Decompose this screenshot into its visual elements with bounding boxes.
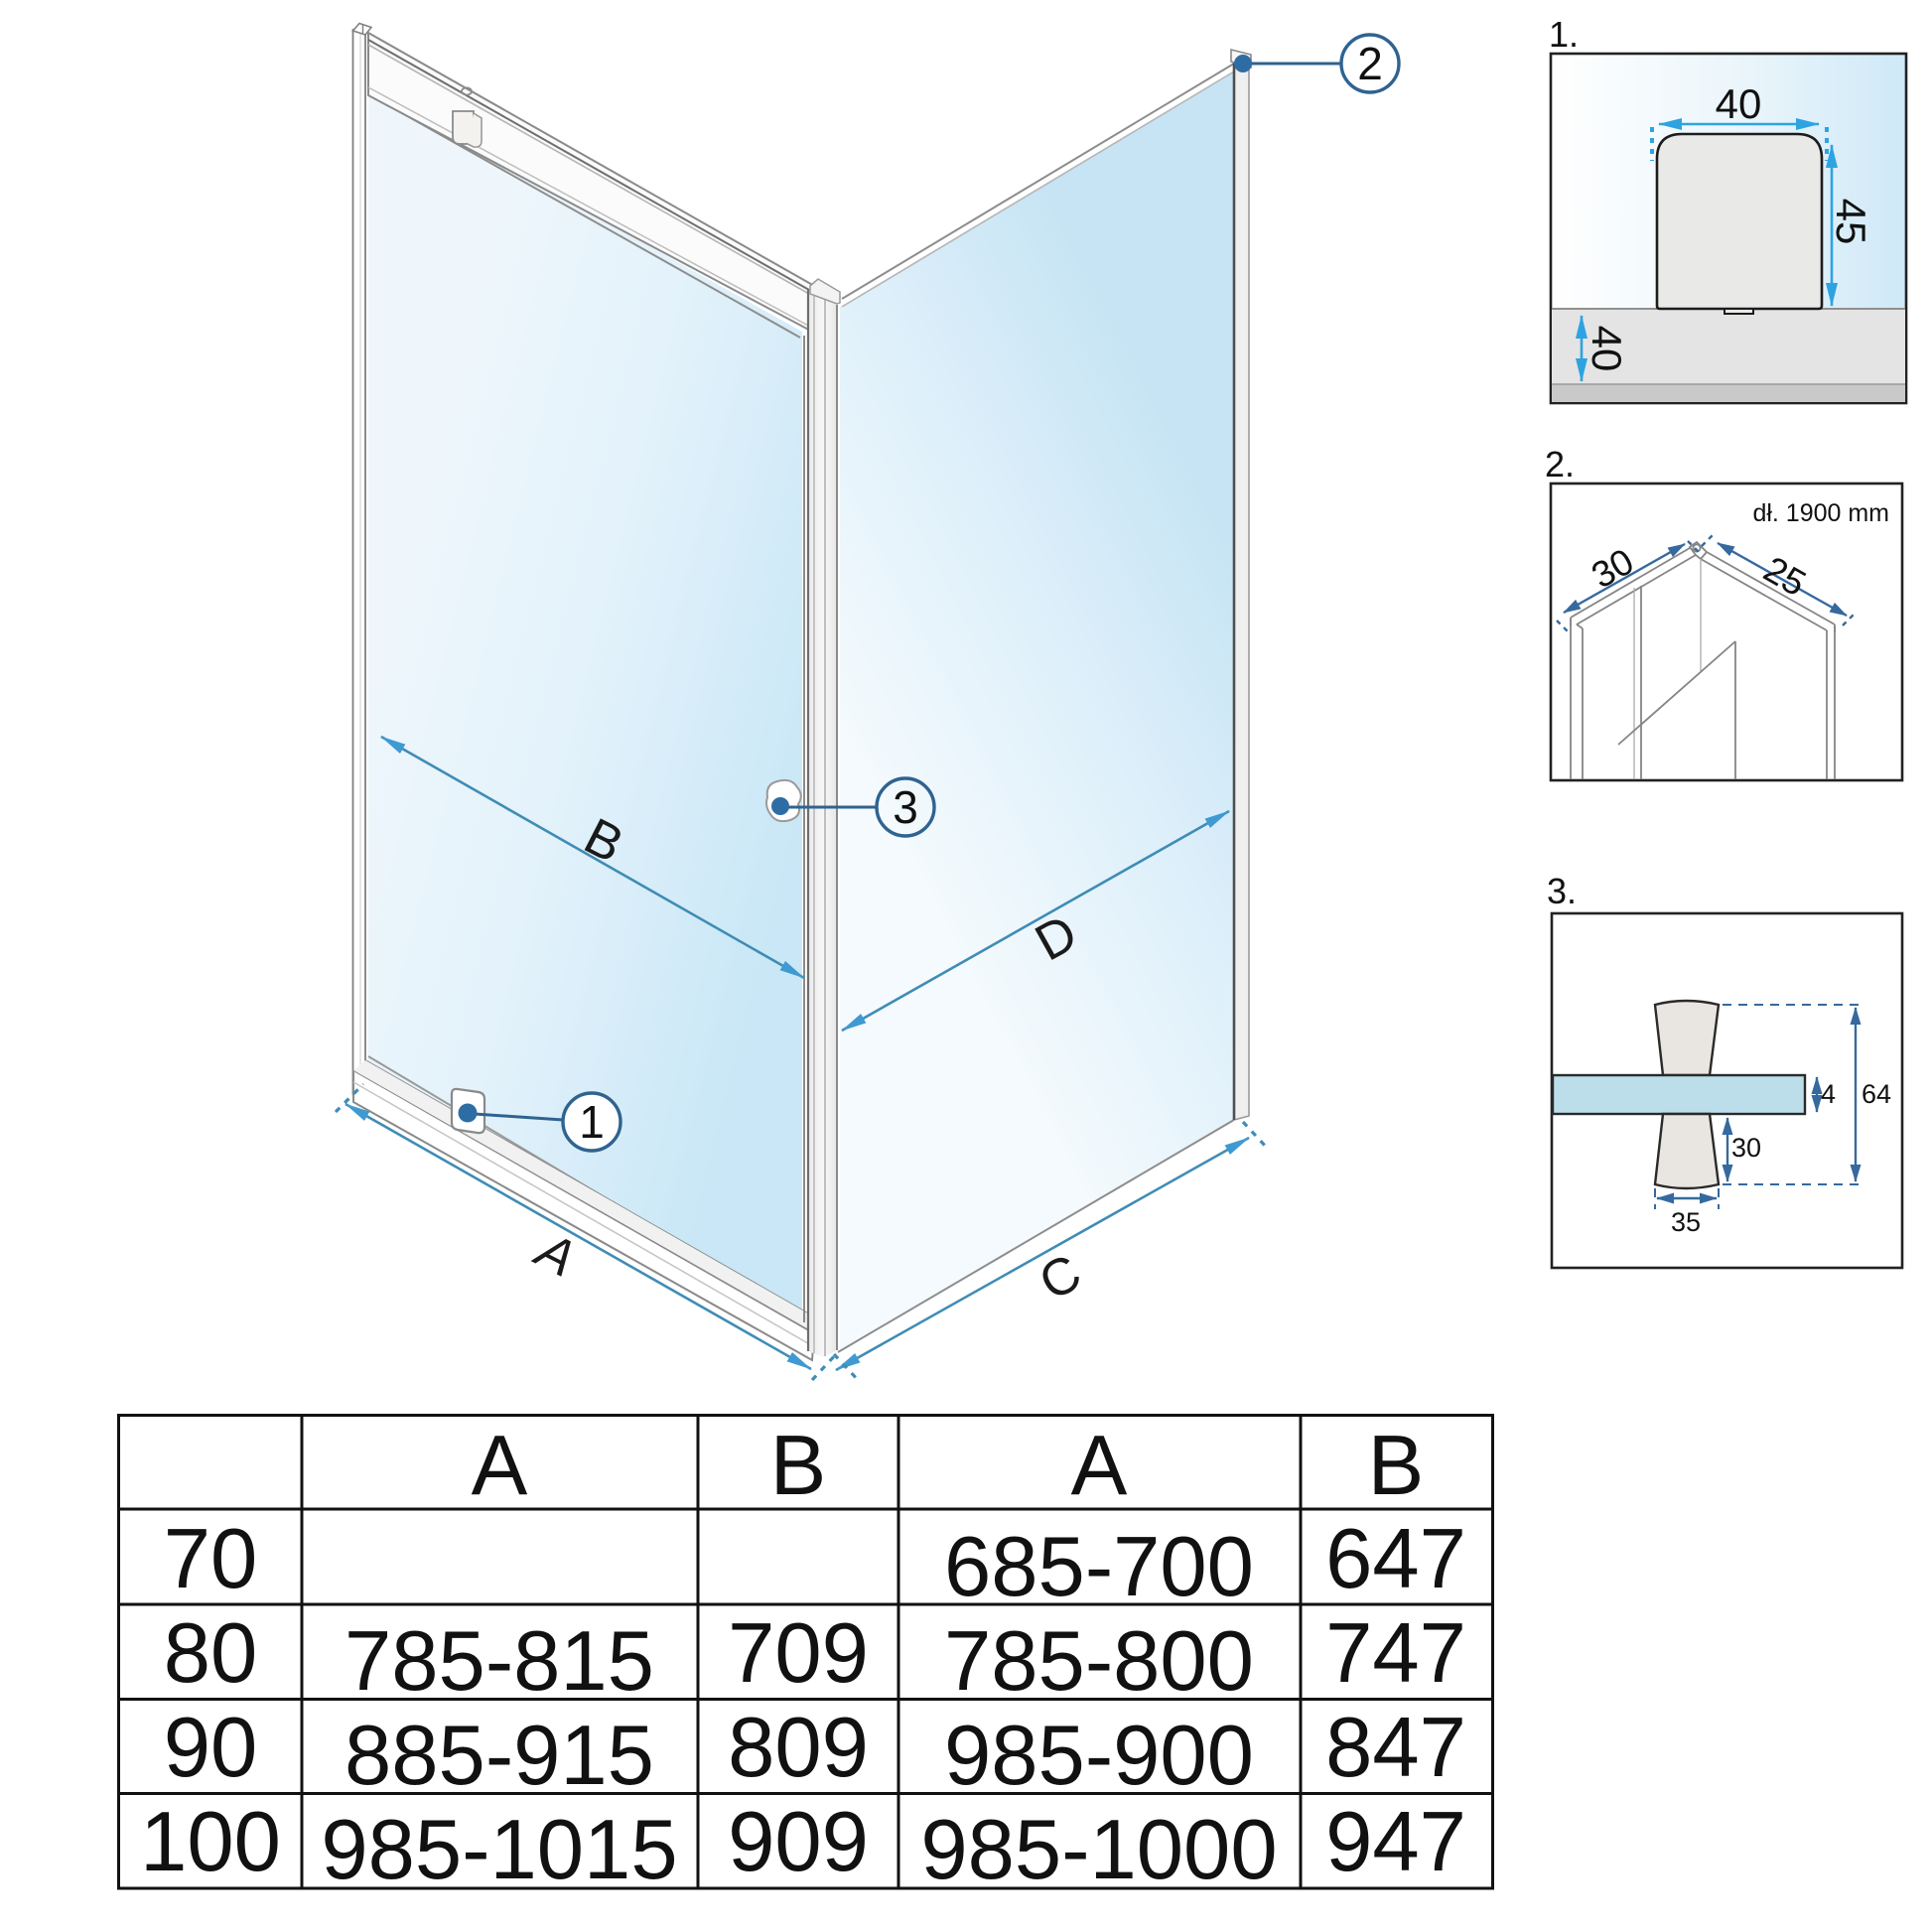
svg-text:747: 747 <box>1325 1606 1466 1701</box>
svg-text:30: 30 <box>1731 1133 1761 1163</box>
svg-text:64: 64 <box>1862 1079 1891 1109</box>
svg-text:4: 4 <box>1821 1079 1836 1109</box>
svg-text:80: 80 <box>164 1606 258 1701</box>
svg-text:647: 647 <box>1325 1512 1466 1606</box>
svg-text:1.: 1. <box>1549 14 1579 55</box>
svg-text:100: 100 <box>140 1795 281 1889</box>
svg-text:3.: 3. <box>1547 871 1577 911</box>
svg-text:A: A <box>525 1220 585 1289</box>
svg-text:C: C <box>1031 1244 1091 1312</box>
svg-text:3: 3 <box>893 781 918 833</box>
svg-text:A: A <box>1071 1419 1128 1513</box>
svg-text:947: 947 <box>1325 1795 1466 1889</box>
svg-text:A: A <box>472 1419 528 1513</box>
svg-text:B: B <box>1368 1419 1425 1513</box>
svg-text:40: 40 <box>1584 326 1630 372</box>
svg-text:809: 809 <box>728 1701 869 1795</box>
svg-text:909: 909 <box>728 1795 869 1889</box>
svg-text:985-1015: 985-1015 <box>321 1803 677 1897</box>
svg-text:885-915: 885-915 <box>345 1709 654 1803</box>
svg-text:35: 35 <box>1671 1207 1701 1237</box>
svg-text:1: 1 <box>579 1096 605 1148</box>
svg-text:B: B <box>770 1419 827 1513</box>
svg-text:709: 709 <box>728 1606 869 1701</box>
svg-text:70: 70 <box>164 1512 258 1606</box>
svg-text:2.: 2. <box>1545 444 1575 484</box>
svg-text:dł. 1900 mm: dł. 1900 mm <box>1752 499 1889 527</box>
svg-text:2: 2 <box>1357 38 1383 89</box>
svg-text:785-800: 785-800 <box>944 1614 1254 1709</box>
svg-text:90: 90 <box>164 1701 258 1795</box>
svg-text:785-815: 785-815 <box>345 1614 654 1709</box>
svg-text:45: 45 <box>1828 199 1874 245</box>
svg-text:685-700: 685-700 <box>944 1520 1254 1614</box>
svg-text:985-1000: 985-1000 <box>920 1803 1277 1897</box>
svg-text:985-900: 985-900 <box>944 1709 1254 1803</box>
svg-text:40: 40 <box>1716 80 1762 127</box>
svg-text:847: 847 <box>1325 1701 1466 1795</box>
